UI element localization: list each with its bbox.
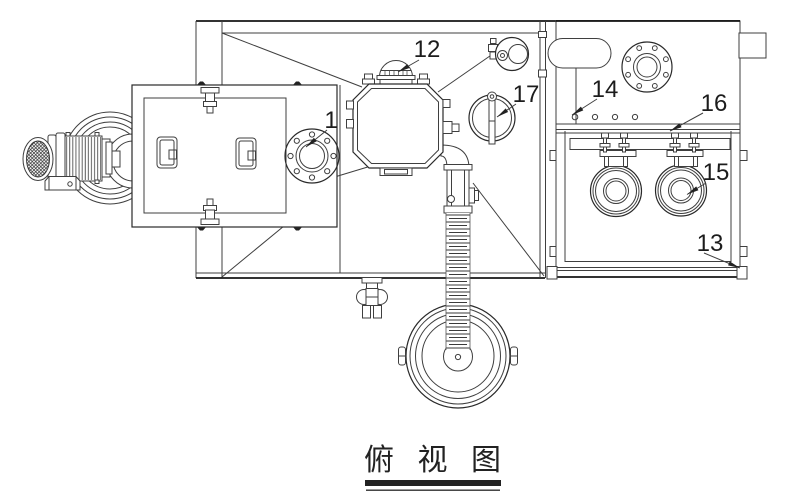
mounting-rail	[570, 139, 730, 150]
octagonal-chamber	[347, 61, 460, 176]
threaded-nozzle	[443, 122, 459, 134]
dome-fitting	[377, 61, 415, 84]
top-view-drawing: 1 12 17 14 16 15 13	[0, 0, 800, 503]
glass-neck-left	[600, 151, 636, 167]
top-valve	[489, 38, 529, 71]
callout-1-label: 1	[324, 107, 337, 134]
motor-body	[23, 133, 120, 191]
container-handle-right	[511, 347, 518, 365]
caption-text: 俯 视 图	[364, 443, 508, 478]
callout-14-label: 14	[592, 76, 619, 103]
discharge-duct-and-container	[399, 145, 518, 408]
top-bolt-left	[363, 74, 375, 84]
sight-glass-left	[591, 166, 642, 217]
hinge-tab	[740, 151, 747, 161]
bottom-fitting	[380, 168, 412, 176]
caption-underline-thin	[366, 490, 500, 491]
drawing-caption: 俯 视 图	[364, 443, 508, 491]
duct-knob	[469, 188, 475, 203]
sight-glass-right	[656, 165, 707, 216]
fan-grille	[27, 141, 50, 177]
callout-16-label: 16	[701, 90, 728, 117]
caption-underline-thick	[365, 480, 501, 486]
hinge-tab	[550, 151, 556, 161]
glass-neck-right	[667, 151, 703, 167]
cabinet-foot	[737, 267, 747, 280]
callout-13-label: 13	[697, 230, 724, 257]
engineering-drawing-page: 1 12 17 14 16 15 13	[0, 0, 800, 503]
left-cover-box	[132, 85, 339, 227]
right-cabinet-plate	[556, 21, 766, 124]
callout-12-label: 12	[414, 36, 441, 63]
motor-base	[45, 177, 80, 191]
hinge-tab	[550, 247, 556, 257]
side-port	[347, 120, 354, 129]
hinge-tab	[740, 247, 747, 257]
bottom-clamp-valve	[357, 278, 388, 319]
cabinet-foot	[547, 267, 557, 280]
callout-17-label: 17	[513, 81, 540, 108]
horizontal-pipe	[548, 39, 611, 69]
side-port	[347, 101, 354, 109]
container-handle-left	[399, 347, 406, 365]
frame-right-upright	[539, 21, 547, 278]
corrugated-hose	[446, 213, 470, 350]
handwheel-valve	[469, 92, 515, 144]
callout-15-label: 15	[703, 159, 730, 186]
callout-13: 13	[697, 230, 740, 268]
side-port	[443, 100, 450, 108]
side-stub-port	[739, 33, 766, 58]
top-bolt-right	[418, 74, 430, 84]
